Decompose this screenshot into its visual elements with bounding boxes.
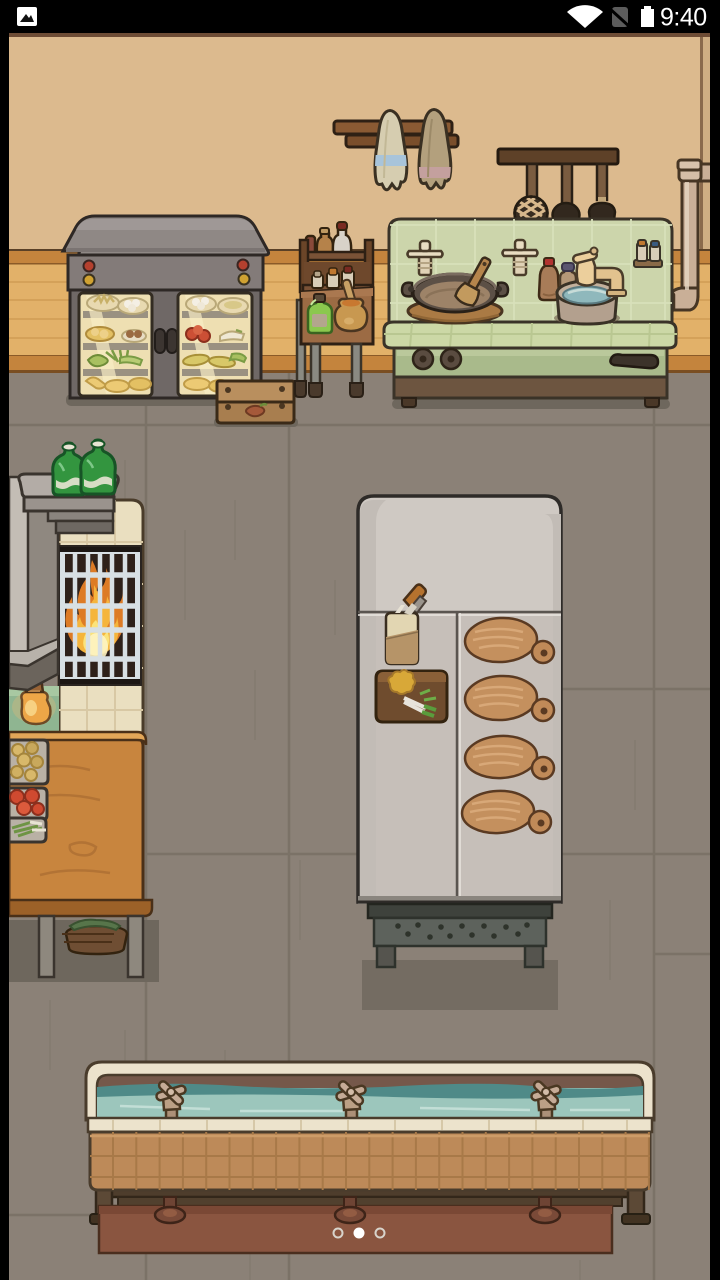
svg-text:9:40: 9:40: [660, 4, 707, 32]
